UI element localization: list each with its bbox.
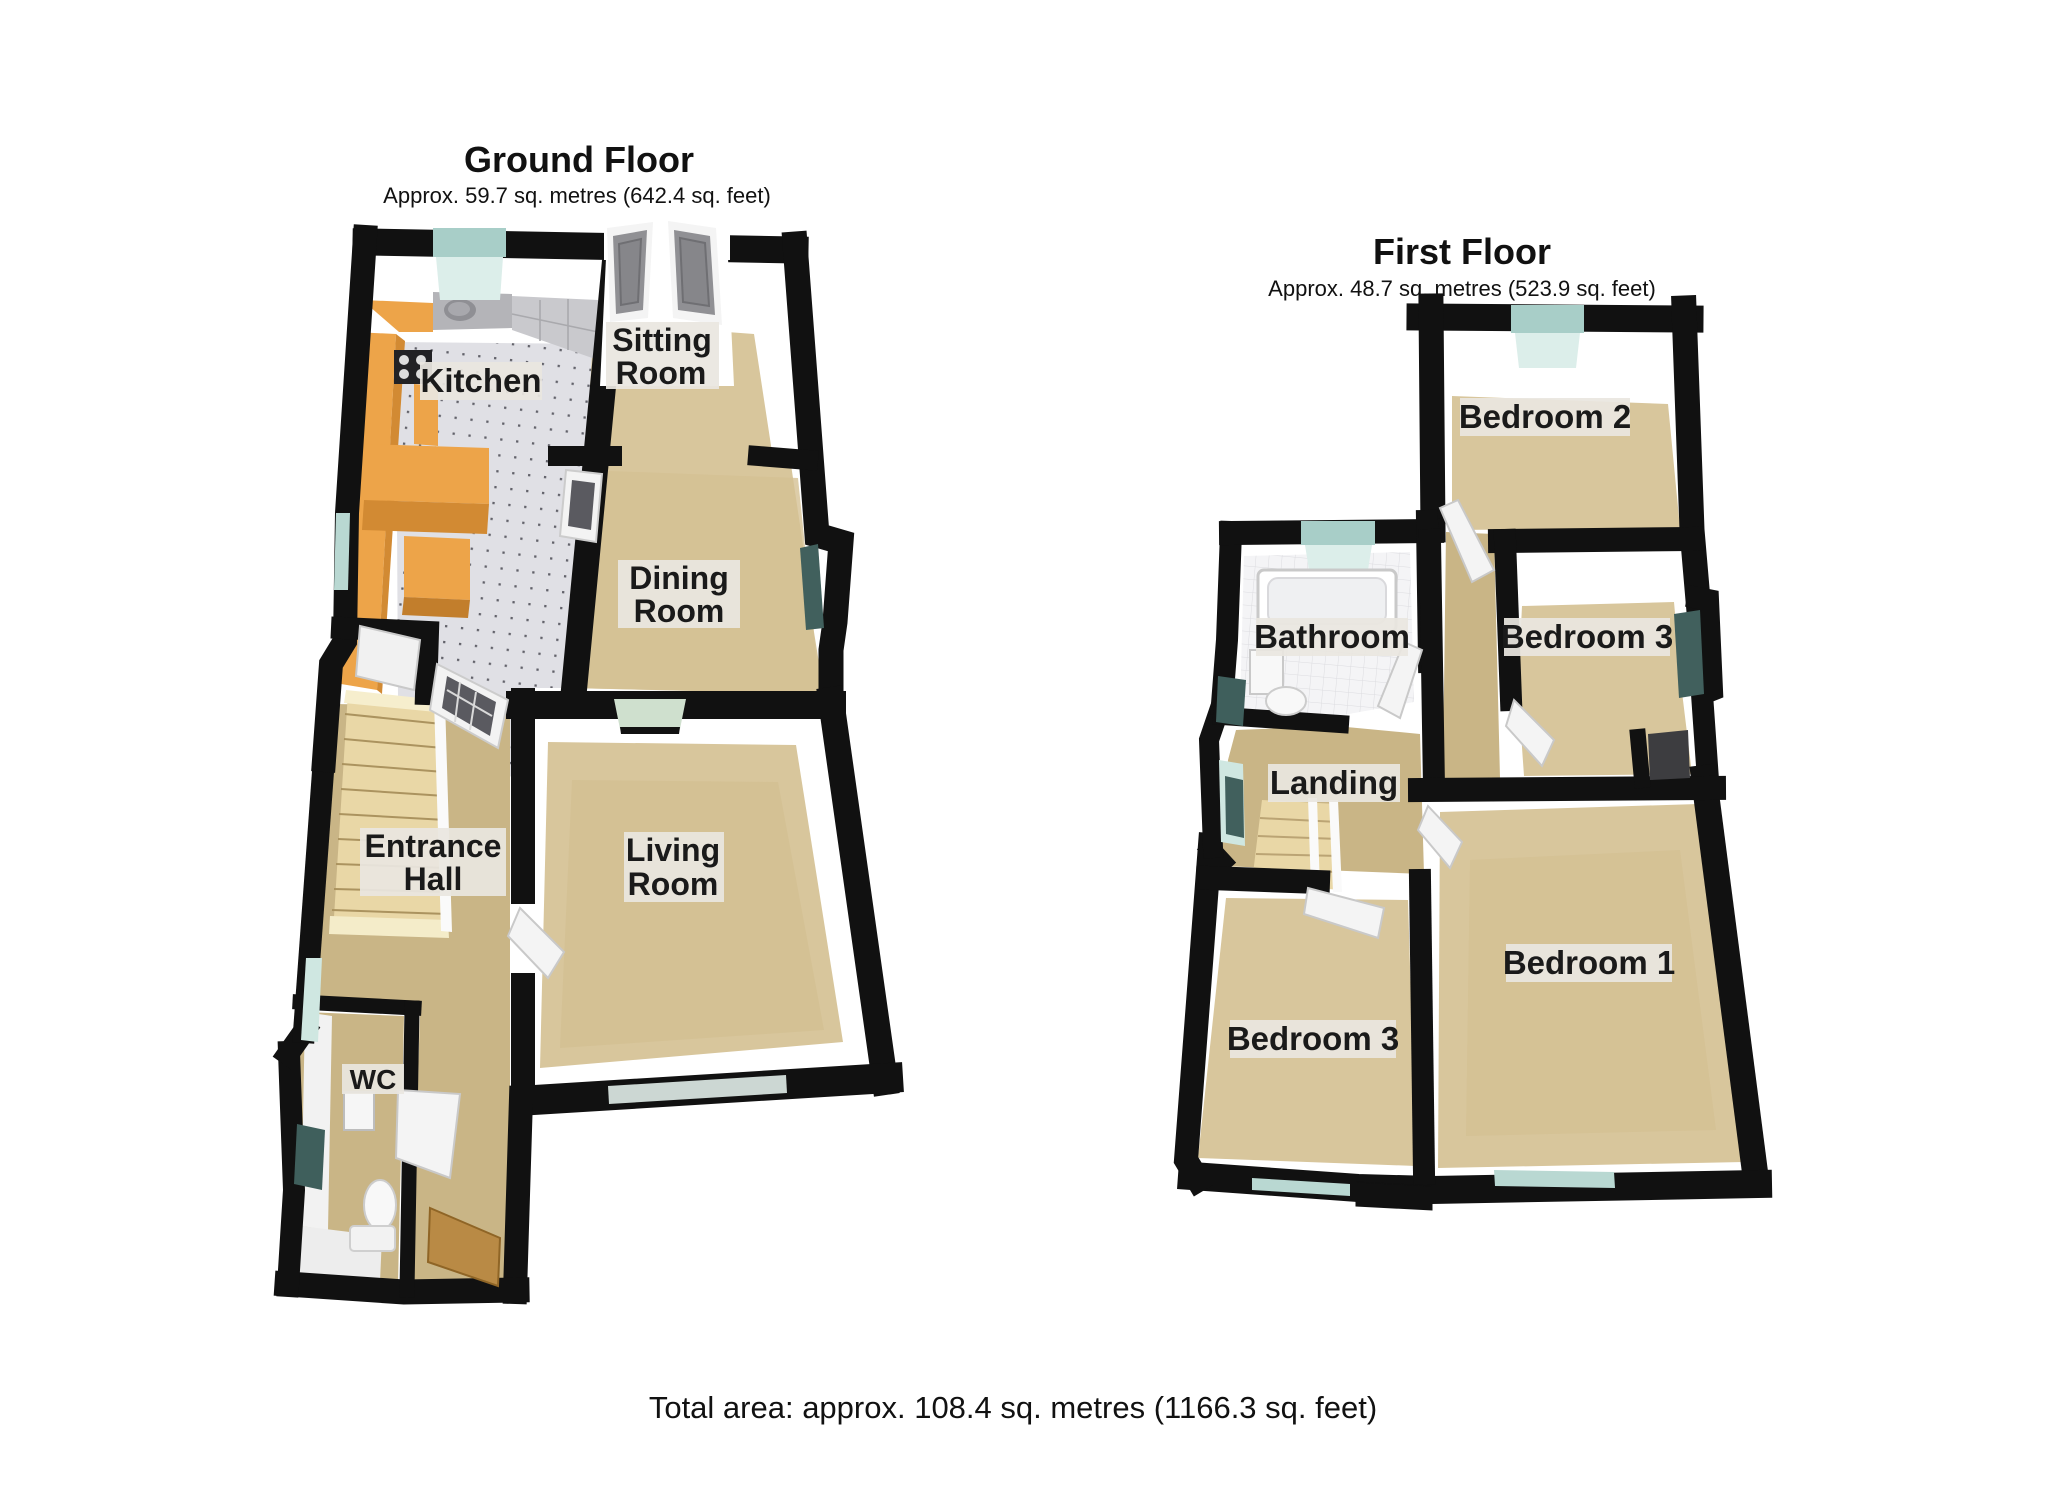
svg-text:Bathroom: Bathroom (1254, 618, 1410, 655)
svg-text:Landing: Landing (1270, 764, 1398, 801)
svg-text:First Floor: First Floor (1373, 231, 1551, 272)
svg-text:Room: Room (634, 593, 725, 629)
svg-text:Hall: Hall (404, 861, 463, 897)
svg-text:Approx. 59.7 sq. metres (642.4: Approx. 59.7 sq. metres (642.4 sq. feet) (383, 183, 771, 208)
svg-text:Entrance: Entrance (365, 828, 502, 864)
svg-text:Living: Living (626, 832, 720, 868)
svg-text:Kitchen: Kitchen (420, 362, 541, 399)
svg-text:WC: WC (350, 1064, 397, 1095)
svg-text:Ground Floor: Ground Floor (464, 139, 694, 180)
svg-text:Room: Room (616, 355, 707, 391)
svg-text:Bedroom 2: Bedroom 2 (1459, 398, 1631, 435)
svg-text:Room: Room (628, 866, 719, 902)
svg-text:Total area: approx. 108.4 sq.: Total area: approx. 108.4 sq. metres (11… (649, 1390, 1377, 1425)
svg-text:Sitting: Sitting (612, 322, 712, 358)
svg-text:Approx. 48.7 sq. metres (523.9: Approx. 48.7 sq. metres (523.9 sq. feet) (1268, 276, 1656, 301)
svg-text:Bedroom 3: Bedroom 3 (1227, 1020, 1399, 1057)
svg-text:Dining: Dining (629, 560, 729, 596)
svg-text:Bedroom 1: Bedroom 1 (1503, 944, 1675, 981)
svg-text:Bedroom 3: Bedroom 3 (1501, 618, 1673, 655)
